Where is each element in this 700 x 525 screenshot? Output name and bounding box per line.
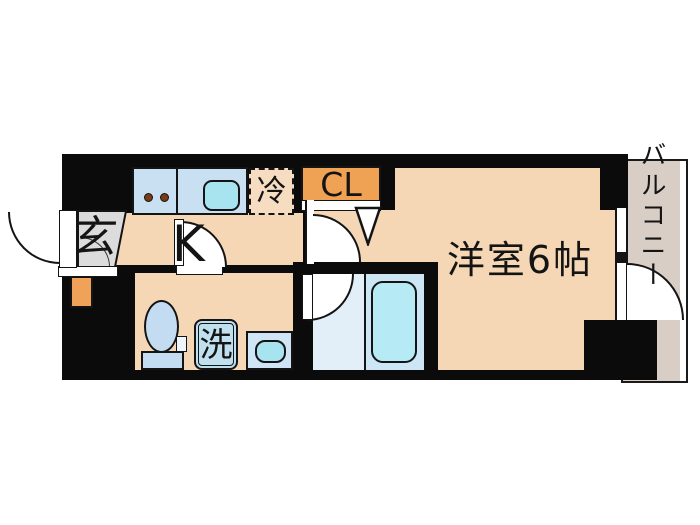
washing-machine: 洗 <box>194 319 238 370</box>
shoe-box <box>70 276 93 308</box>
stove-burner-icon <box>144 193 153 202</box>
stove-burner-icon <box>160 193 169 202</box>
refrigerator-label: 冷 <box>257 177 287 207</box>
toilet-bowl <box>144 300 179 353</box>
closet-door-marker <box>352 206 384 246</box>
balcony-label-box: バルコニー <box>638 141 664 336</box>
balcony-label: バルコニー <box>636 141 666 291</box>
bath-door-leaf <box>302 274 313 320</box>
toilet-tank <box>141 351 184 370</box>
kitchen-sink-icon <box>203 180 240 211</box>
washer-label: 洗 <box>200 328 233 361</box>
entrance-label: 玄 <box>71 216 120 260</box>
bathtub <box>371 281 417 363</box>
entrance-door-leaf <box>59 210 77 268</box>
western-room-label: 洋室6帖 <box>447 241 593 279</box>
kitchen-label-box: K <box>172 219 205 269</box>
kitchen-counter <box>132 167 248 215</box>
western-room-floor-top <box>395 168 600 213</box>
closet-label: CL <box>320 168 361 201</box>
closet: CL <box>301 166 381 202</box>
entrance-door-swing <box>8 212 60 264</box>
toilet-paper-holder <box>176 336 187 352</box>
counter-divider <box>176 169 178 213</box>
western-room-label-box: 洋室6帖 <box>404 237 636 283</box>
floor-plan: 冷 CL 玄 洗 洋室6帖 K <box>0 0 700 525</box>
refrigerator-space: 冷 <box>249 168 294 215</box>
wash-basin-bowl <box>255 340 286 363</box>
wash-basin <box>246 331 293 370</box>
kitchen-label: K <box>172 215 205 273</box>
